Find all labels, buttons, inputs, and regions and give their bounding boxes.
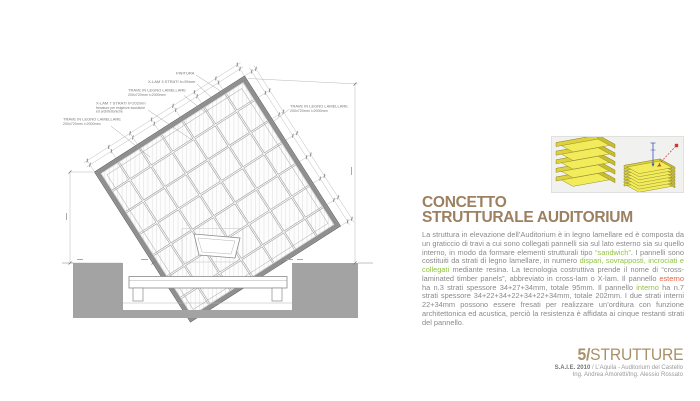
text-column: CONCETTO STRUTTURALE AUDITORIUM La strut… — [422, 196, 684, 327]
section-title: CONCETTO STRUTTURALE AUDITORIUM — [422, 196, 676, 225]
drawing-label-trave-left: TRAVE IN LEGNO LAMELLARE — [63, 117, 121, 122]
section-title-line2: STRUTTURALE AUDITORIUM — [422, 209, 633, 226]
section-number-digit: 5/ — [577, 346, 590, 364]
drawing-label-xlam7-note2: ed architettoniche — [96, 110, 123, 114]
xlam-panels-diagram — [551, 136, 684, 193]
body-text: La struttura in elevazione dell’Auditori… — [422, 231, 684, 327]
drawing-label-trave-right: TRAVE IN LEGNO LAMELLARE — [290, 104, 348, 109]
xlam-diagram-svg — [552, 137, 683, 192]
section-number-label: STRUTTURE — [590, 346, 683, 364]
credits-line2: Ing. Andrea Amoretti/Ing. Alessio Rossat… — [555, 372, 683, 379]
footer: 5/STRUTTURE S.A.I.E. 2010 / L’Aquila - A… — [555, 347, 683, 379]
drawing-label-finitura: FINITURA — [176, 71, 195, 76]
credits: S.A.I.E. 2010 / L’Aquila - Auditorium de… — [555, 365, 683, 379]
drawing-label-trave-top-dim: 200x720mm i=2000mm — [128, 93, 166, 97]
drawing-label-xlam7: X-LAM 7 STRATI h=202mm — [96, 101, 146, 106]
drawing-label-xlam3: X-LAM 3 STRATI h=95mm — [148, 79, 196, 84]
drawing-label-trave-right-dim: 200x720mm i=2000mm — [290, 109, 328, 113]
slide: FINITURA X-LAM 3 STRATI h=95mm TRAVE IN … — [0, 0, 700, 401]
panel-stacks — [556, 137, 675, 192]
credits-line1: S.A.I.E. 2010 / L’Aquila - Auditorium de… — [555, 365, 683, 372]
glulam-beams-photo — [423, 136, 546, 193]
credits-project: / L’Aquila - Auditorium del Castello — [590, 365, 683, 371]
credits-event: S.A.I.E. 2010 — [555, 365, 591, 371]
section-number: 5/STRUTTURE — [561, 347, 683, 364]
drawing-label-trave-top: TRAVE IN LEGNO LAMELLARE — [128, 88, 186, 93]
drawing-label-trave-left-dim: 200x720mm i=2000mm — [63, 122, 101, 126]
technical-drawing-elevation: FINITURA X-LAM 3 STRATI h=95mm TRAVE IN … — [0, 0, 420, 400]
